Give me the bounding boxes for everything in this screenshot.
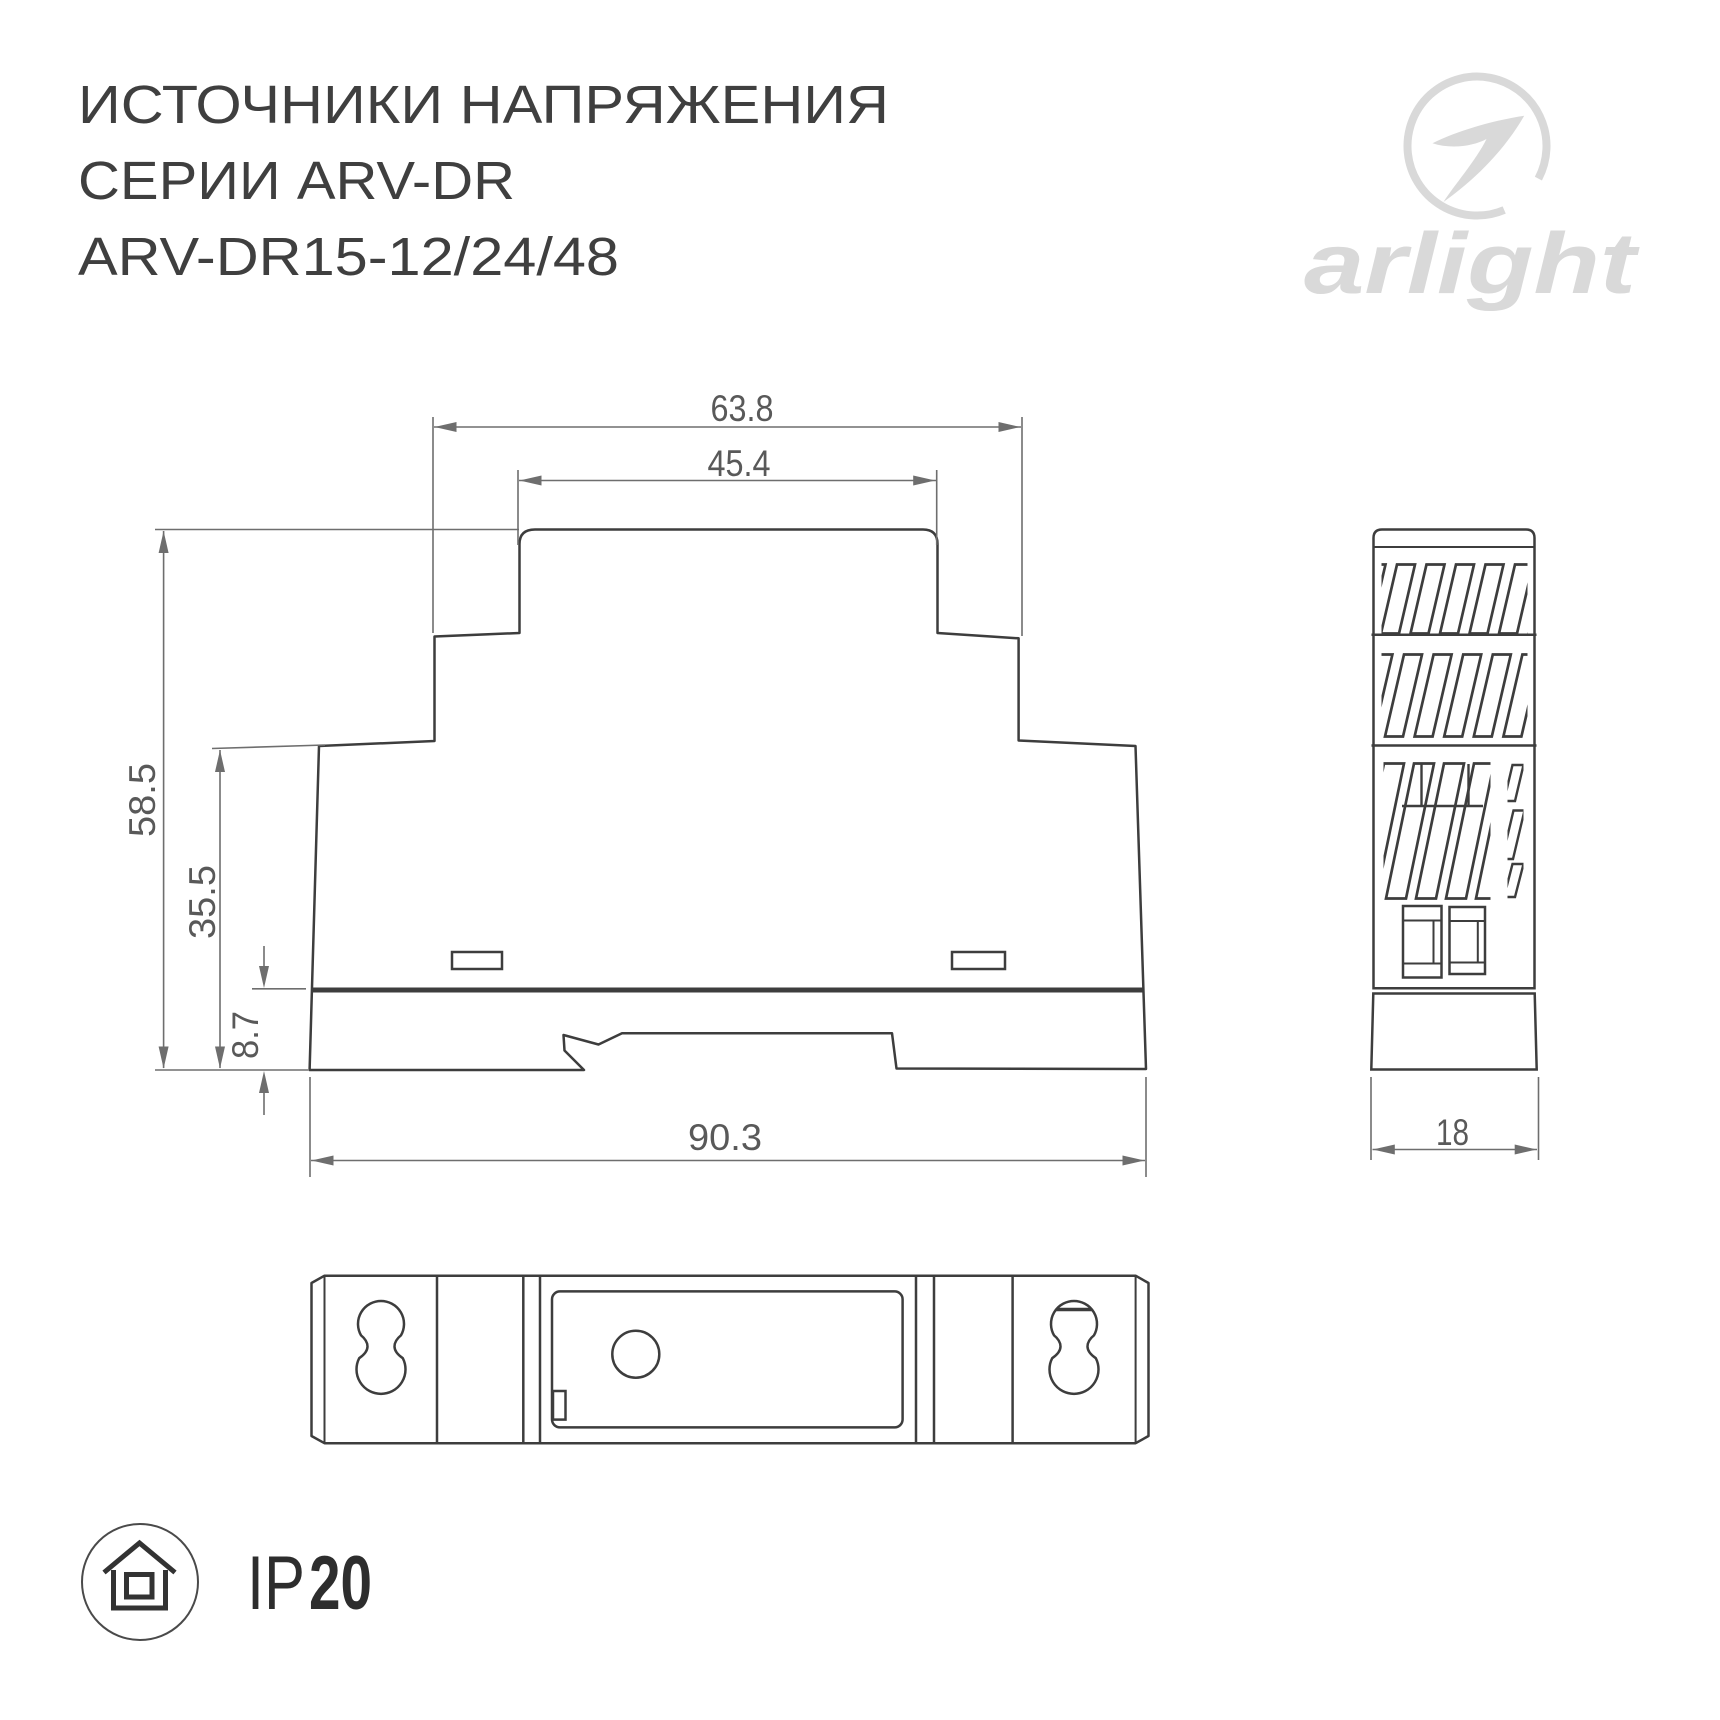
svg-text:35.5: 35.5 bbox=[182, 865, 223, 939]
svg-text:20: 20 bbox=[309, 1541, 372, 1626]
svg-text:СЕРИИ ARV-DR: СЕРИИ ARV-DR bbox=[78, 151, 515, 211]
svg-text:ARV-DR15-12/24/48: ARV-DR15-12/24/48 bbox=[78, 227, 619, 287]
svg-text:58.5: 58.5 bbox=[122, 763, 163, 837]
svg-text:63.8: 63.8 bbox=[711, 388, 774, 429]
svg-text:arlight: arlight bbox=[1304, 216, 1640, 312]
svg-text:45.4: 45.4 bbox=[708, 443, 771, 484]
svg-text:90.3: 90.3 bbox=[688, 1117, 762, 1158]
svg-text:8.7: 8.7 bbox=[225, 1011, 266, 1059]
svg-text:IP: IP bbox=[247, 1541, 305, 1626]
svg-text:18: 18 bbox=[1436, 1112, 1469, 1153]
svg-text:ИСТОЧНИКИ НАПРЯЖЕНИЯ: ИСТОЧНИКИ НАПРЯЖЕНИЯ bbox=[78, 75, 889, 135]
